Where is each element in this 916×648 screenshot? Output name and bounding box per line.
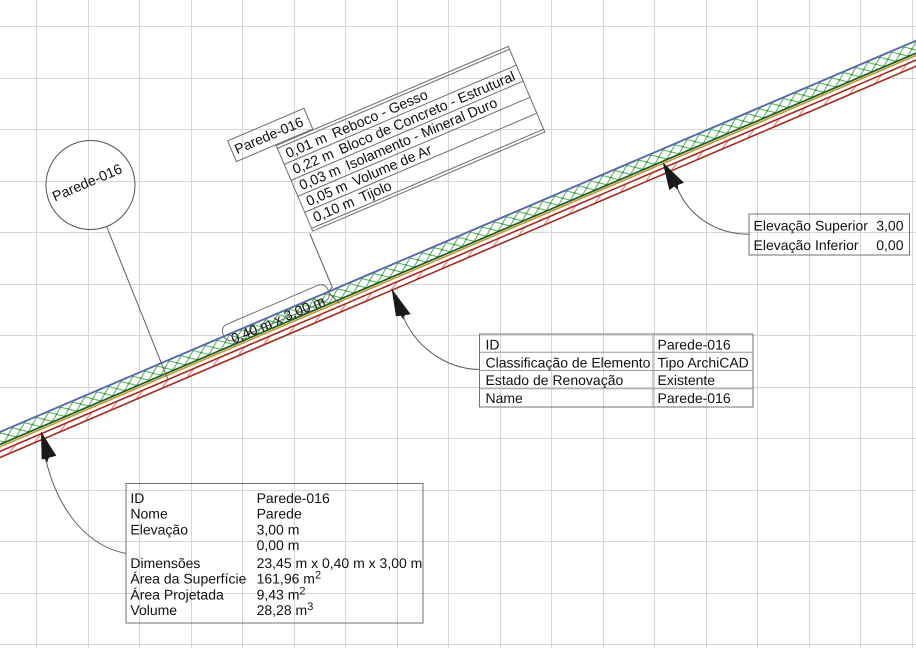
svg-text:9,43 m2: 9,43 m2 <box>257 585 306 602</box>
svg-text:Nome: Nome <box>130 506 168 522</box>
svg-text:ID: ID <box>486 336 500 352</box>
svg-text:Estado de Renovação: Estado de Renovação <box>486 372 624 388</box>
svg-text:0,00 m: 0,00 m <box>257 537 300 553</box>
svg-text:Classificação de Elemento: Classificação de Elemento <box>486 354 651 370</box>
svg-text:Parede: Parede <box>257 506 302 522</box>
svg-text:Dimensões: Dimensões <box>130 555 200 571</box>
svg-text:Área da Superfície: Área da Superfície <box>130 571 246 587</box>
svg-text:23,45 m x 0,40 m x 3,00 m: 23,45 m x 0,40 m x 3,00 m <box>257 555 423 571</box>
svg-text:Parede-016: Parede-016 <box>658 336 731 352</box>
svg-text:Volume: Volume <box>130 602 177 618</box>
svg-text:3,00: 3,00 <box>876 218 903 234</box>
svg-text:Elevação: Elevação <box>130 521 188 537</box>
svg-text:28,28 m3: 28,28 m3 <box>257 601 314 618</box>
svg-text:Área Projetada: Área Projetada <box>130 586 224 602</box>
svg-text:Parede-016: Parede-016 <box>257 490 330 506</box>
svg-text:Elevação Superior: Elevação Superior <box>754 218 869 234</box>
svg-text:Tipo ArchiCAD: Tipo ArchiCAD <box>658 354 749 370</box>
svg-text:3,00 m: 3,00 m <box>257 521 300 537</box>
svg-text:Parede-016: Parede-016 <box>658 390 731 406</box>
svg-text:0,00: 0,00 <box>876 237 903 253</box>
svg-text:Elevação Inferior: Elevação Inferior <box>754 237 859 253</box>
svg-text:161,96 m2: 161,96 m2 <box>257 570 322 587</box>
svg-text:ID: ID <box>130 490 144 506</box>
svg-text:Existente: Existente <box>658 372 716 388</box>
svg-text:Name: Name <box>486 390 524 406</box>
